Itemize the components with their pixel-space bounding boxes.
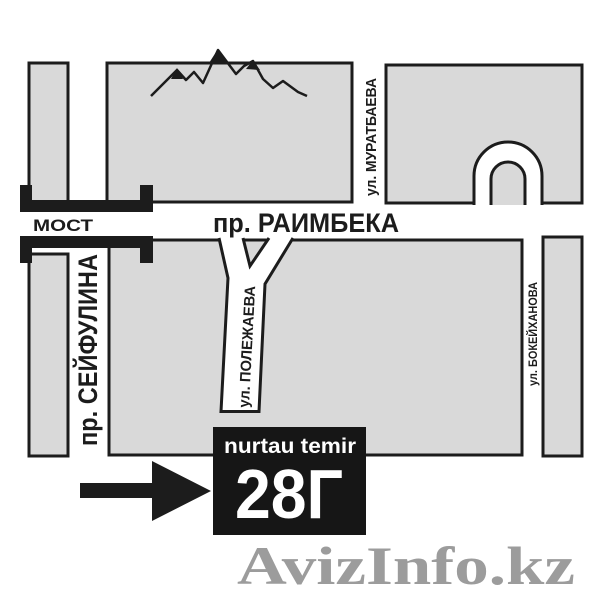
block-top-center (107, 63, 352, 202)
street-label-seifullin: пр. СЕЙФУЛИНА (72, 254, 103, 446)
block-bottom-left (29, 254, 68, 456)
road-u-loop (474, 142, 542, 205)
block-right-strip (543, 237, 582, 456)
location-map: МОСТ пр. РАИМБЕКА пр. СЕЙФУЛИНА ул. МУРА… (0, 0, 600, 600)
block-top-left (29, 63, 68, 202)
watermark-logo: AvizInfo.kz (237, 536, 575, 596)
street-label-bokeikhanov: ул. БОКЕЙХАНОВА (525, 282, 540, 386)
marker-number: 28Г (235, 455, 343, 533)
street-label-muratbaev: ул. МУРАТБАЕВА (364, 78, 380, 196)
destination-marker: nurtau temir 28Г (213, 427, 366, 535)
arrow-icon (80, 461, 211, 521)
block-main (109, 240, 522, 455)
street-label-raimbek: пр. РАИМБЕКА (213, 208, 399, 238)
map-canvas: МОСТ пр. РАИМБЕКА пр. СЕЙФУЛИНА ул. МУРА… (0, 0, 600, 600)
bridge-label: МОСТ (33, 216, 94, 235)
